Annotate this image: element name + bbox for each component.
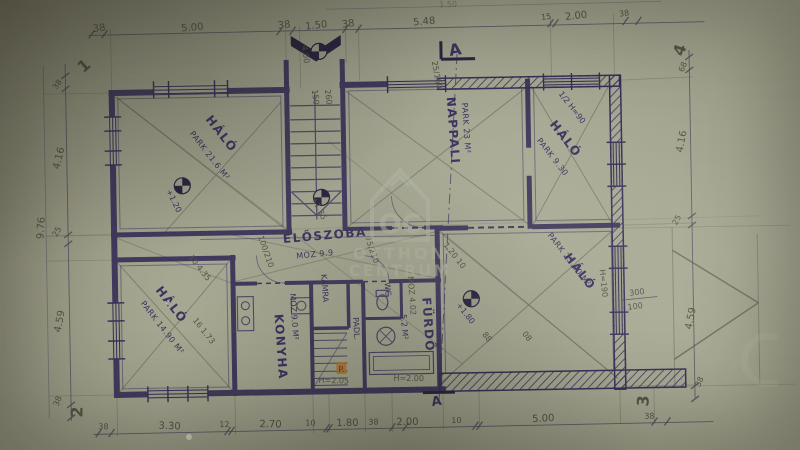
floor-plan-photo: 38 5.00 38 1.50 38 5.48 15 2.00 38 1.50 …: [0, 0, 800, 450]
floor-plan-drawing: 38 5.00 38 1.50 38 5.48 15 2.00 38 1.50 …: [0, 0, 800, 450]
paper-grain: [0, 0, 800, 450]
